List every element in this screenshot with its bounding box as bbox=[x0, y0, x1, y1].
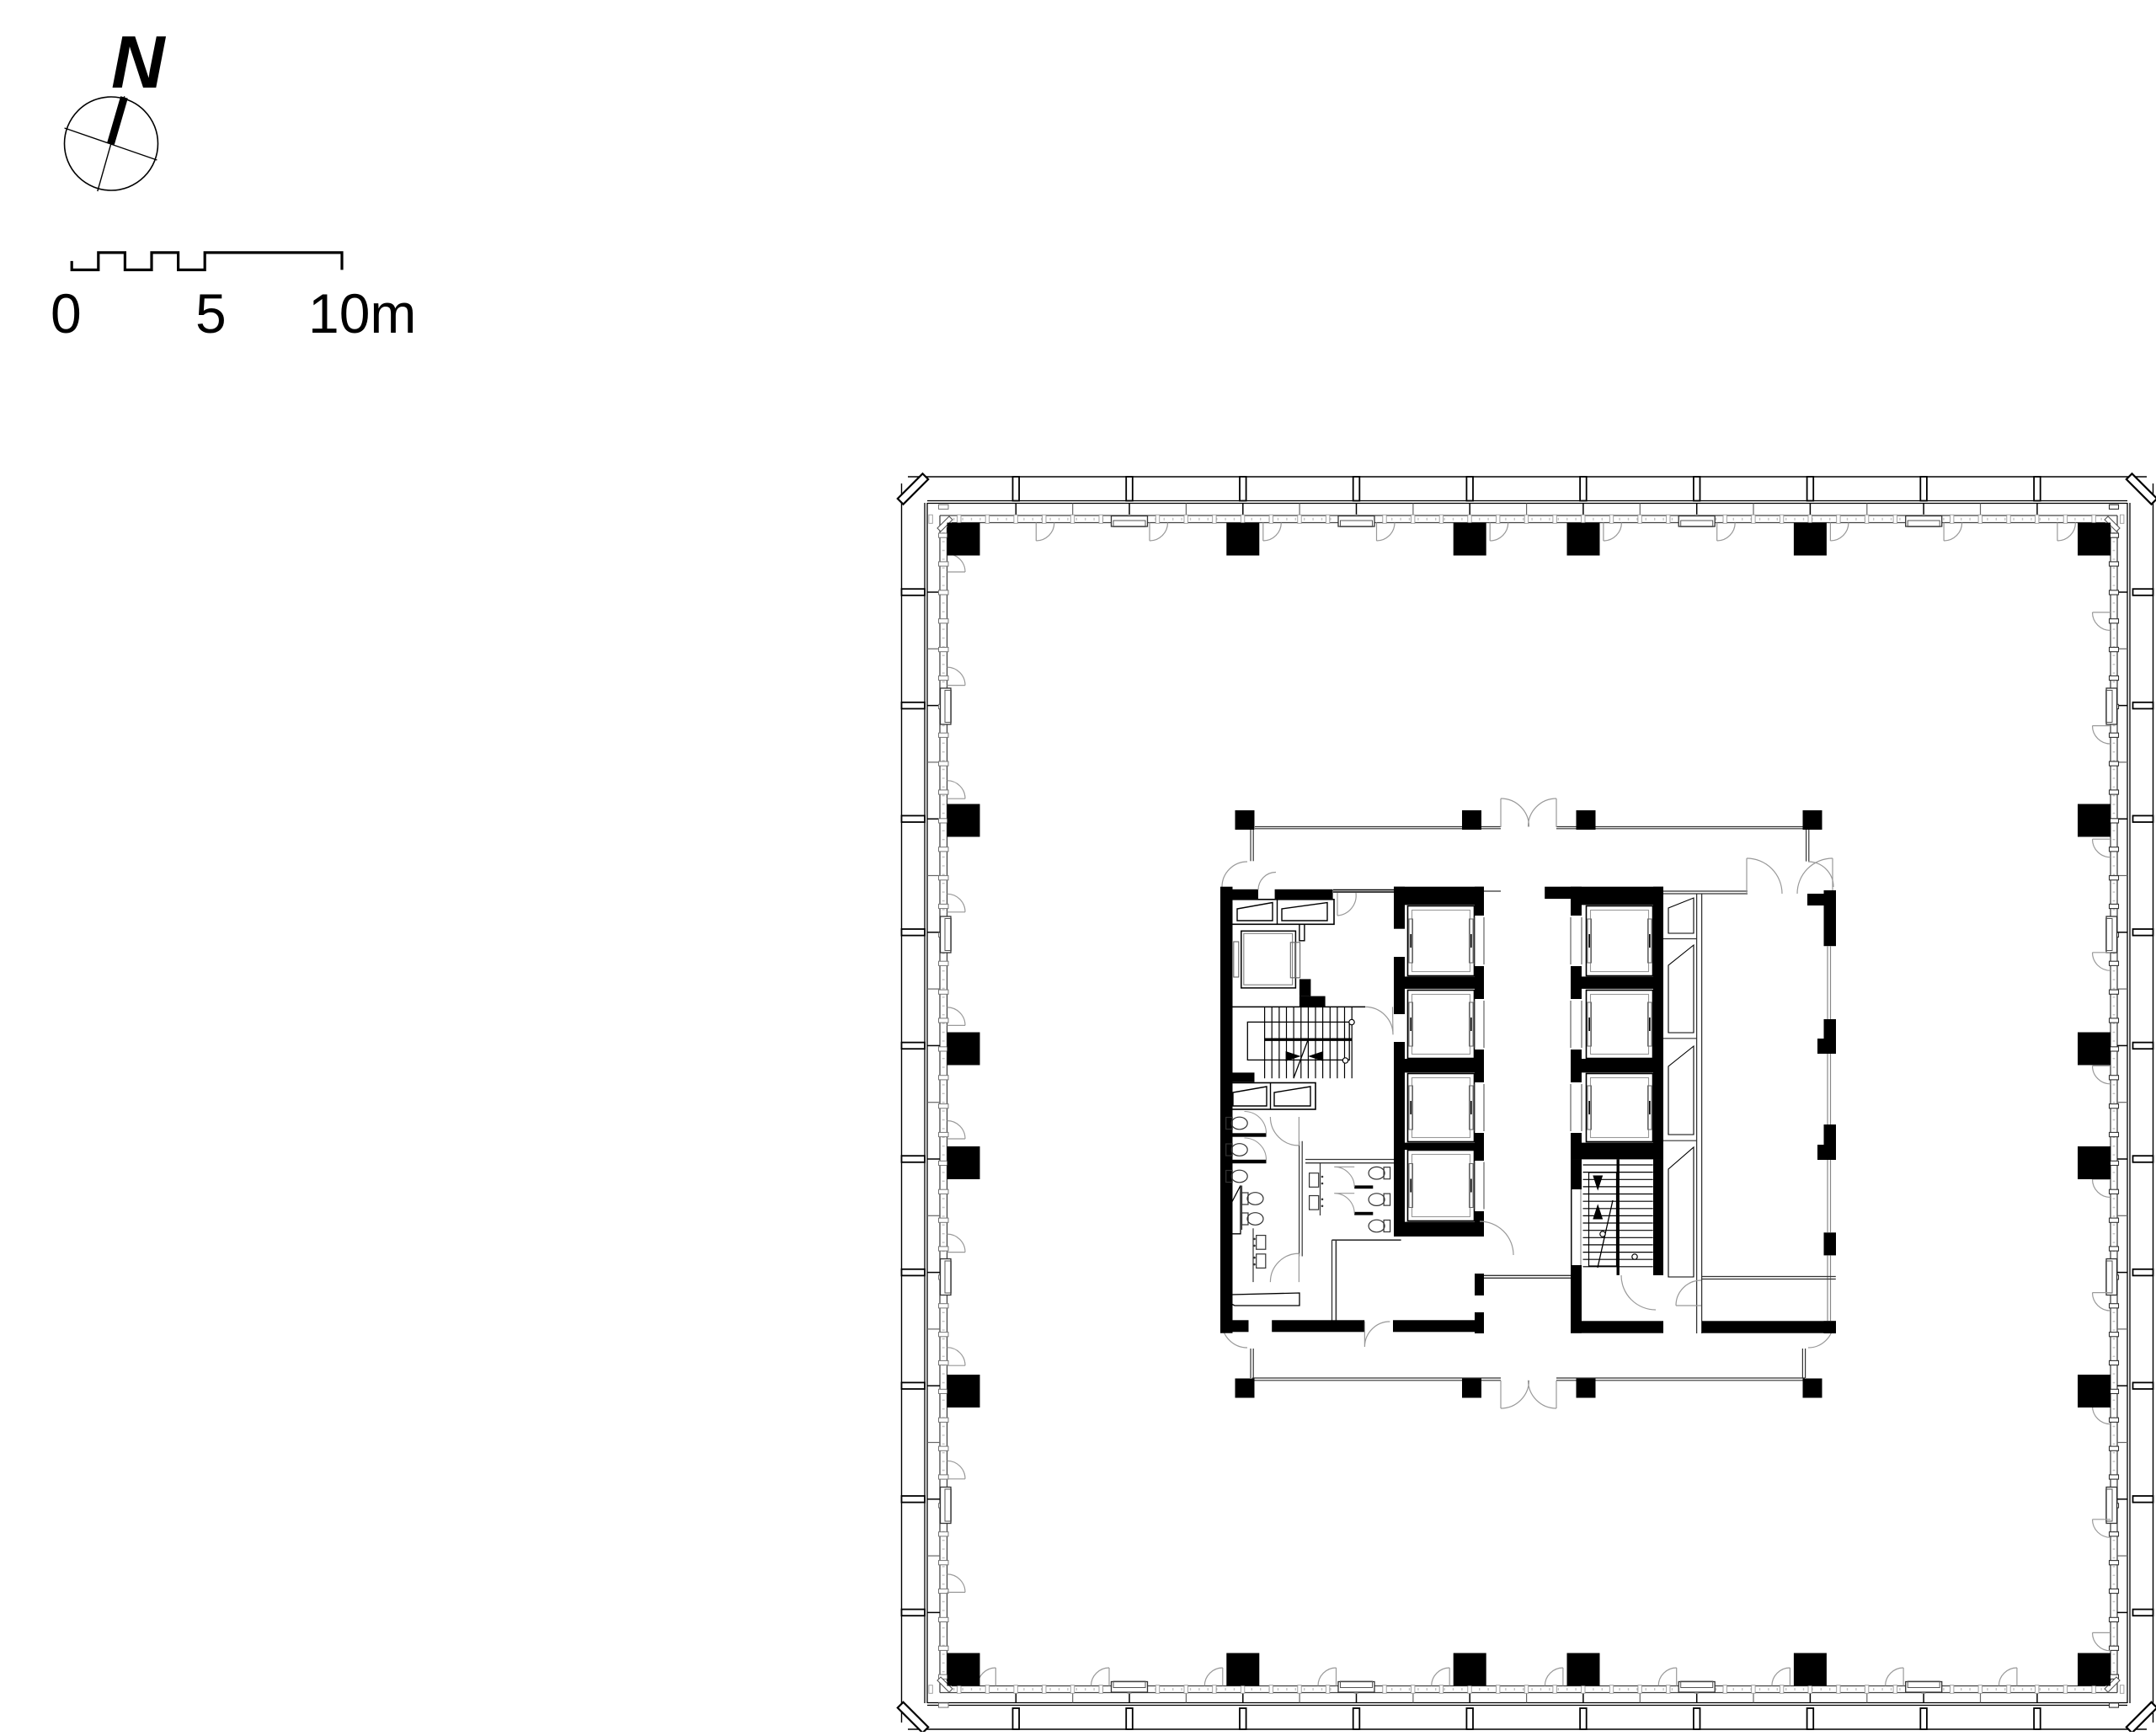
svg-text:0: 0 bbox=[51, 282, 82, 345]
svg-text:10m: 10m bbox=[308, 282, 416, 345]
svg-text:5: 5 bbox=[195, 282, 227, 345]
svg-text:N: N bbox=[111, 20, 167, 104]
